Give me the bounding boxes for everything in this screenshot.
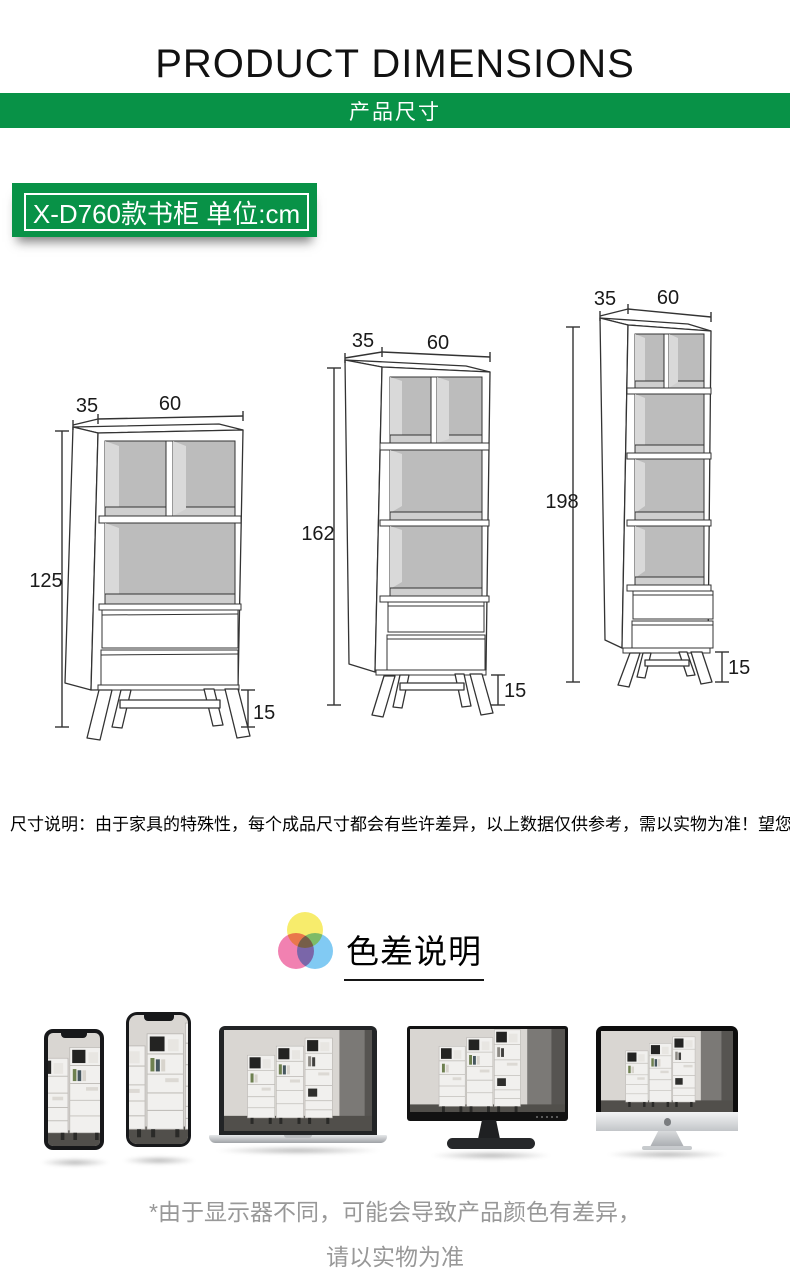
imac-stand: [650, 1131, 684, 1147]
bookcase-diagram-162: 35 60 162 15: [300, 325, 565, 720]
leg-height-label-1: 15: [253, 702, 275, 724]
color-difference-note: *由于显示器不同，可能会导致产品颜色有差异， 请以实物为准: [0, 1190, 790, 1280]
phone-notch: [144, 1015, 174, 1021]
apple-logo-icon: [664, 1118, 671, 1126]
page: { "header": { "title": "PRODUCT DIMENSIO…: [0, 0, 790, 1284]
venn-blue-circle: [297, 933, 333, 969]
height-label-2: 162: [301, 523, 334, 545]
height-label-3: 198: [545, 491, 578, 513]
product-photo: [601, 1031, 733, 1112]
bookcase-diagram-125: 35 60 125 15: [28, 388, 293, 753]
product-photo: [48, 1033, 100, 1146]
color-section-title: 色差说明: [344, 925, 484, 981]
desktop-monitor: [407, 1026, 568, 1121]
note-line-2: 请以实物为准: [0, 1235, 790, 1280]
page-title: PRODUCT DIMENSIONS: [0, 42, 790, 87]
width-label-2: 60: [427, 332, 449, 354]
depth-label-1: 35: [76, 395, 98, 417]
leg-height-label-2: 15: [504, 680, 526, 702]
device-shadow: [214, 1146, 382, 1155]
model-badge-label: X-D760款书柜 单位:cm: [24, 193, 309, 231]
monitor-stand-neck: [478, 1120, 500, 1139]
imac: [596, 1026, 738, 1131]
note-line-1: *由于显示器不同，可能会导致产品颜色有差异，: [0, 1190, 790, 1235]
monitor-stand-base: [447, 1138, 535, 1149]
section-banner: 产品尺寸: [0, 93, 790, 128]
model-badge: X-D760款书柜 单位:cm: [12, 183, 317, 237]
imac-screen: [596, 1026, 738, 1112]
cabinet-legs: [372, 674, 493, 717]
product-photo: [129, 1015, 188, 1144]
device-shadow: [122, 1156, 196, 1165]
cabinet-legs: [618, 652, 712, 687]
leg-height-label-3: 15: [728, 657, 750, 679]
device-shadow: [40, 1158, 110, 1167]
phone-notch: [61, 1033, 87, 1038]
width-label-3: 60: [657, 287, 679, 309]
smartphone-small: [44, 1029, 104, 1150]
smartphone-large: [126, 1012, 191, 1147]
imac-chin: [596, 1112, 738, 1131]
cabinet-legs: [87, 689, 250, 740]
width-label-1: 60: [159, 393, 181, 415]
laptop-base: [209, 1135, 387, 1143]
height-label-1: 125: [29, 570, 62, 592]
depth-label-2: 35: [352, 330, 374, 352]
depth-label-3: 35: [594, 288, 616, 310]
product-photo: [224, 1030, 372, 1131]
size-note: 尺寸说明：由于家具的特殊性，每个成品尺寸都会有些许差异，以上数据仅供参考，需以实…: [10, 810, 786, 835]
section-banner-label: 产品尺寸: [349, 96, 441, 126]
device-shadow: [430, 1151, 552, 1160]
laptop-screen: [219, 1026, 377, 1136]
color-circles-icon: [278, 912, 334, 970]
product-photo: [410, 1029, 565, 1112]
bookcase-diagram-198: 35 60 198 15: [545, 278, 790, 693]
device-shadow: [606, 1150, 728, 1159]
